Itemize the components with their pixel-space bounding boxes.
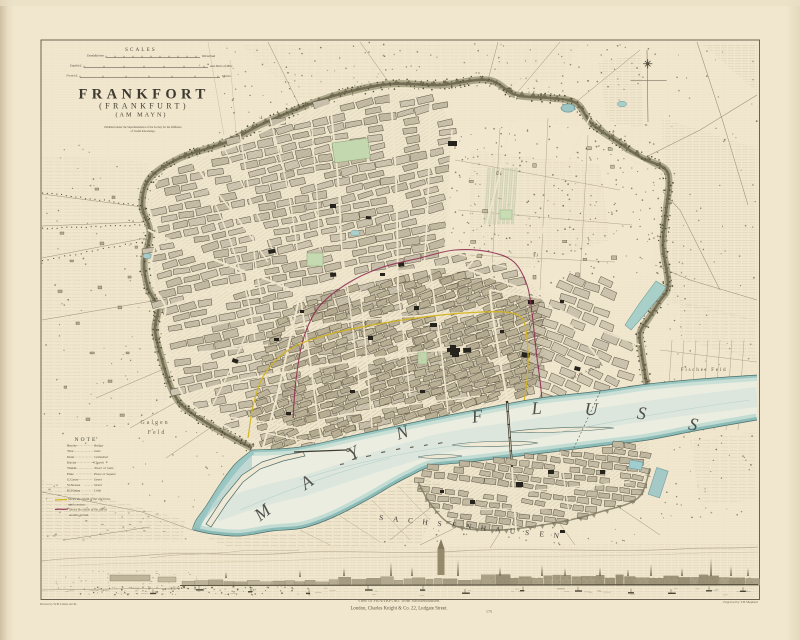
svg-text:(AM MAYN): (AM MAYN): [116, 112, 168, 119]
svg-text:Cathedral: Cathedral: [94, 455, 108, 459]
svg-text:Platz: Platz: [67, 472, 74, 476]
svg-text:Wieselbad: Wieselbad: [202, 54, 216, 58]
svg-text:St.Strasse: St.Strasse: [67, 483, 81, 487]
svg-text:L: L: [530, 398, 542, 419]
svg-text:FRANKFORT: FRANKFORT: [79, 87, 210, 103]
svg-text:Tower or Gate: Tower or Gate: [94, 466, 114, 470]
svg-text:NOTE: NOTE: [75, 437, 98, 443]
svg-text:Thurm: Thurm: [67, 466, 77, 470]
svg-text:SCALES: SCALES: [125, 48, 157, 53]
svg-text:Galgen: Galgen: [140, 420, 169, 426]
svg-text:U: U: [584, 399, 599, 419]
svg-text:Dom: Dom: [67, 455, 74, 459]
svg-text:Street: Street: [94, 477, 103, 481]
svg-text:of Useful Knowledge.: of Useful Knowledge.: [131, 130, 156, 133]
svg-text:Shews the extent of the city i: Shews the extent of the city in the: [68, 497, 111, 501]
svg-text:London, Charles Knight & Co. 2: London, Charles Knight & Co. 22, Ludgate…: [350, 607, 447, 612]
svg-text:Fischer Feld: Fischer Feld: [681, 367, 728, 373]
svg-text:Place or Square: Place or Square: [93, 472, 116, 476]
svg-text:Shews the extent of the city a: Shews the extent of the city at: [69, 508, 107, 512]
svg-text:Thor: Thor: [67, 449, 74, 453]
svg-text:G.Gasse: G.Gasse: [67, 477, 79, 481]
svg-text:Drawn by W.B.Clarke Archt.: Drawn by W.B.Clarke Archt.: [40, 602, 77, 606]
svg-text:(FRANKFURT): (FRANKFURT): [99, 102, 189, 111]
svg-text:View of FRANKFORT from Sachsen: View of FRANKFORT from Sachsenhausen.: [358, 598, 441, 603]
svg-text:Kl.Kleine: Kl.Kleine: [67, 489, 81, 493]
svg-text:and Parts of Mile: and Parts of Mile: [210, 64, 233, 68]
svg-text:French f.: French f.: [65, 74, 78, 78]
svg-text:Little: Little: [93, 489, 102, 493]
svg-text:ninth century.: ninth century.: [68, 503, 86, 507]
svg-text:Kirche: Kirche: [67, 460, 77, 464]
svg-text:179: 179: [486, 609, 492, 614]
svg-text:another period.: another period.: [69, 513, 89, 517]
svg-text:Published under the Superinten: Published under the Superintendence of t…: [104, 126, 182, 129]
svg-text:English f.: English f.: [69, 64, 83, 68]
svg-text:Church: Church: [94, 460, 104, 464]
svg-text:Dumbfahrten: Dumbfahrten: [86, 54, 104, 58]
svg-text:Street: Street: [94, 483, 103, 487]
svg-text:Feld: Feld: [148, 430, 167, 436]
svg-text:Engraved by T.H.Shepherd: Engraved by T.H.Shepherd: [723, 600, 758, 604]
svg-text:Metres: Metres: [221, 74, 231, 78]
svg-text:Bridge: Bridge: [94, 444, 104, 448]
svg-text:Gate: Gate: [94, 449, 101, 453]
svg-text:Brucke: Brucke: [67, 444, 77, 448]
